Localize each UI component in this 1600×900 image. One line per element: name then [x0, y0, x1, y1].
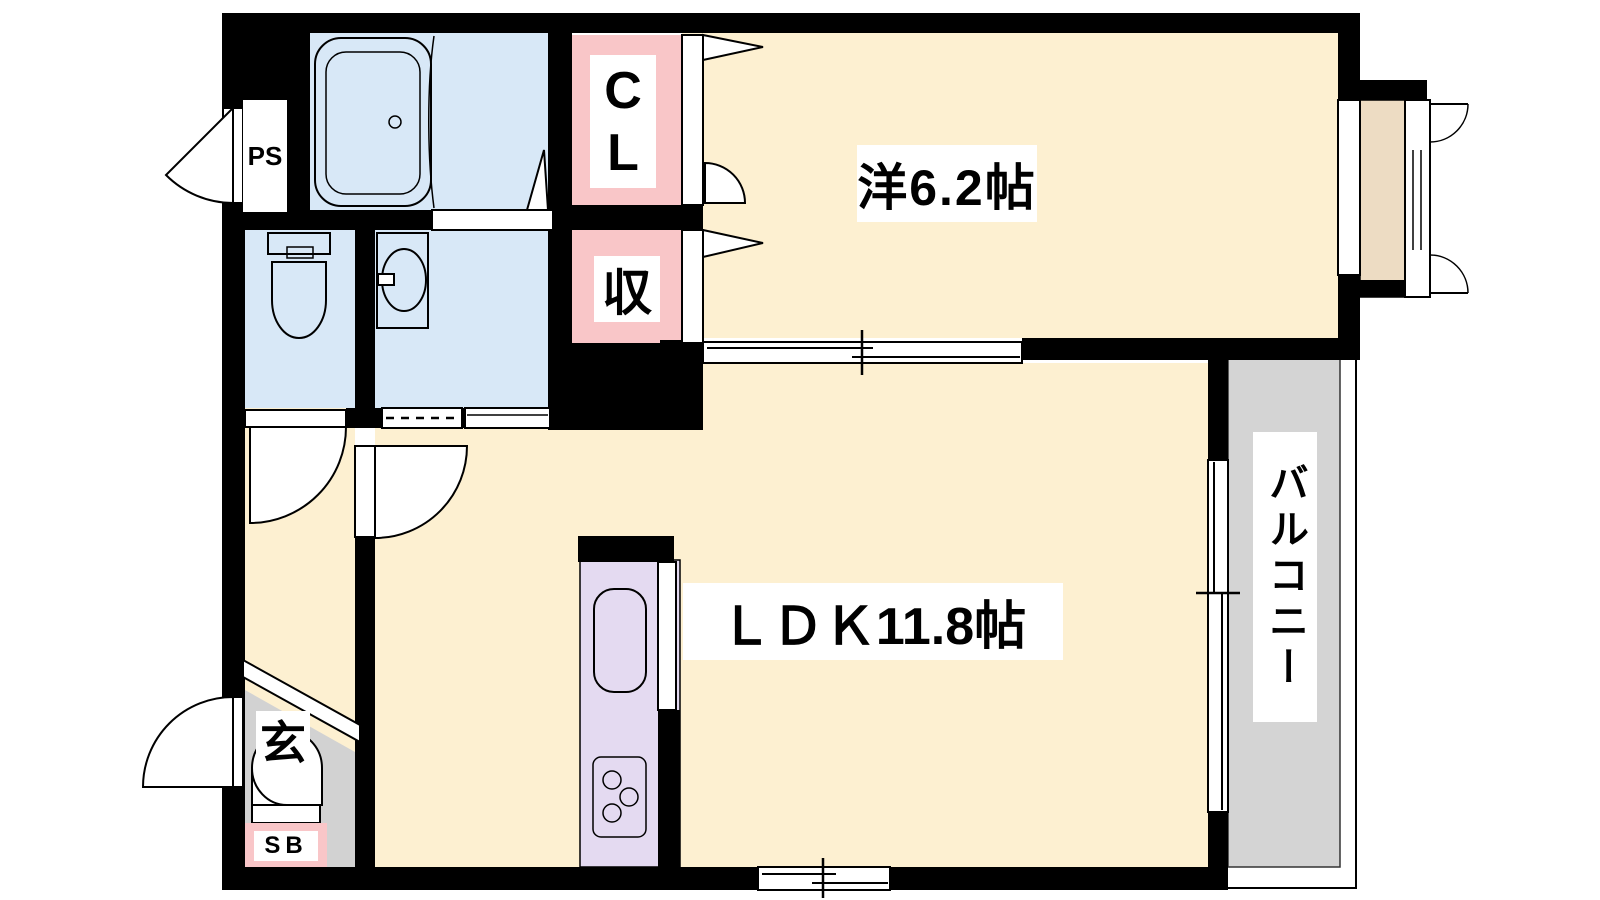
balcony-sliding-window [1208, 460, 1228, 812]
wall-bottom-right [890, 867, 1228, 890]
western-room-label: 洋6.2帖 [857, 145, 1037, 222]
ldk-label: ＬＤＫ11.8帖 [683, 583, 1063, 660]
closet-door-panel [682, 35, 703, 205]
storage-door-panel [682, 230, 703, 343]
wall-closet-storage [553, 205, 703, 230]
bay-window-frame [1405, 100, 1430, 297]
closet-label: CL [590, 55, 656, 188]
toilet-room-floor [245, 230, 355, 408]
wall-western-right-lower [1338, 275, 1360, 338]
balcony-label: バルコニー [1253, 432, 1317, 722]
shoe-box-cabinet [252, 805, 320, 823]
wall-bath-bottom [222, 210, 432, 230]
ps-door-swing [166, 108, 233, 203]
entrance-door-swing [143, 697, 233, 787]
bay-casement-swing [1430, 255, 1468, 293]
wall-kitchen-cap [578, 536, 674, 562]
floor-plan: 洋6.2帖 ＬＤＫ11.8帖 バルコニー CL 収 玄 SB PS [0, 0, 1600, 900]
washroom-door-leaf [355, 446, 375, 537]
wall-top [222, 13, 1360, 33]
shoe-box-label: SB [254, 831, 318, 861]
washroom-floor [375, 230, 548, 408]
pipe-space-label: PS [243, 100, 287, 212]
storage-label: 収 [594, 256, 660, 322]
wall-ldk-right-lower [1208, 812, 1228, 890]
wall-toilet-washroom [355, 230, 375, 408]
wall-western-ldk-right [1022, 338, 1360, 360]
toilet-door-leaf [245, 410, 346, 427]
entrance-label: 玄 [256, 711, 310, 769]
washbasin-tap [378, 274, 394, 285]
wall-hall-ldk [355, 537, 375, 867]
western-room-window [1338, 100, 1360, 275]
bay-casement-swing [1430, 104, 1468, 142]
washroom-counter-band [465, 408, 550, 428]
wall-bath-closet [548, 33, 572, 343]
wall-bay-step-top [1360, 80, 1427, 100]
wall-kitchen-right [658, 710, 680, 867]
floor-plan-drawing [0, 0, 1600, 900]
wall-bottom-left [222, 867, 758, 890]
wall-western-right-upper [1338, 33, 1360, 100]
bathroom-door [432, 210, 553, 230]
bay-window-sill [1360, 100, 1405, 297]
kitchen-counter-opening [658, 562, 676, 710]
